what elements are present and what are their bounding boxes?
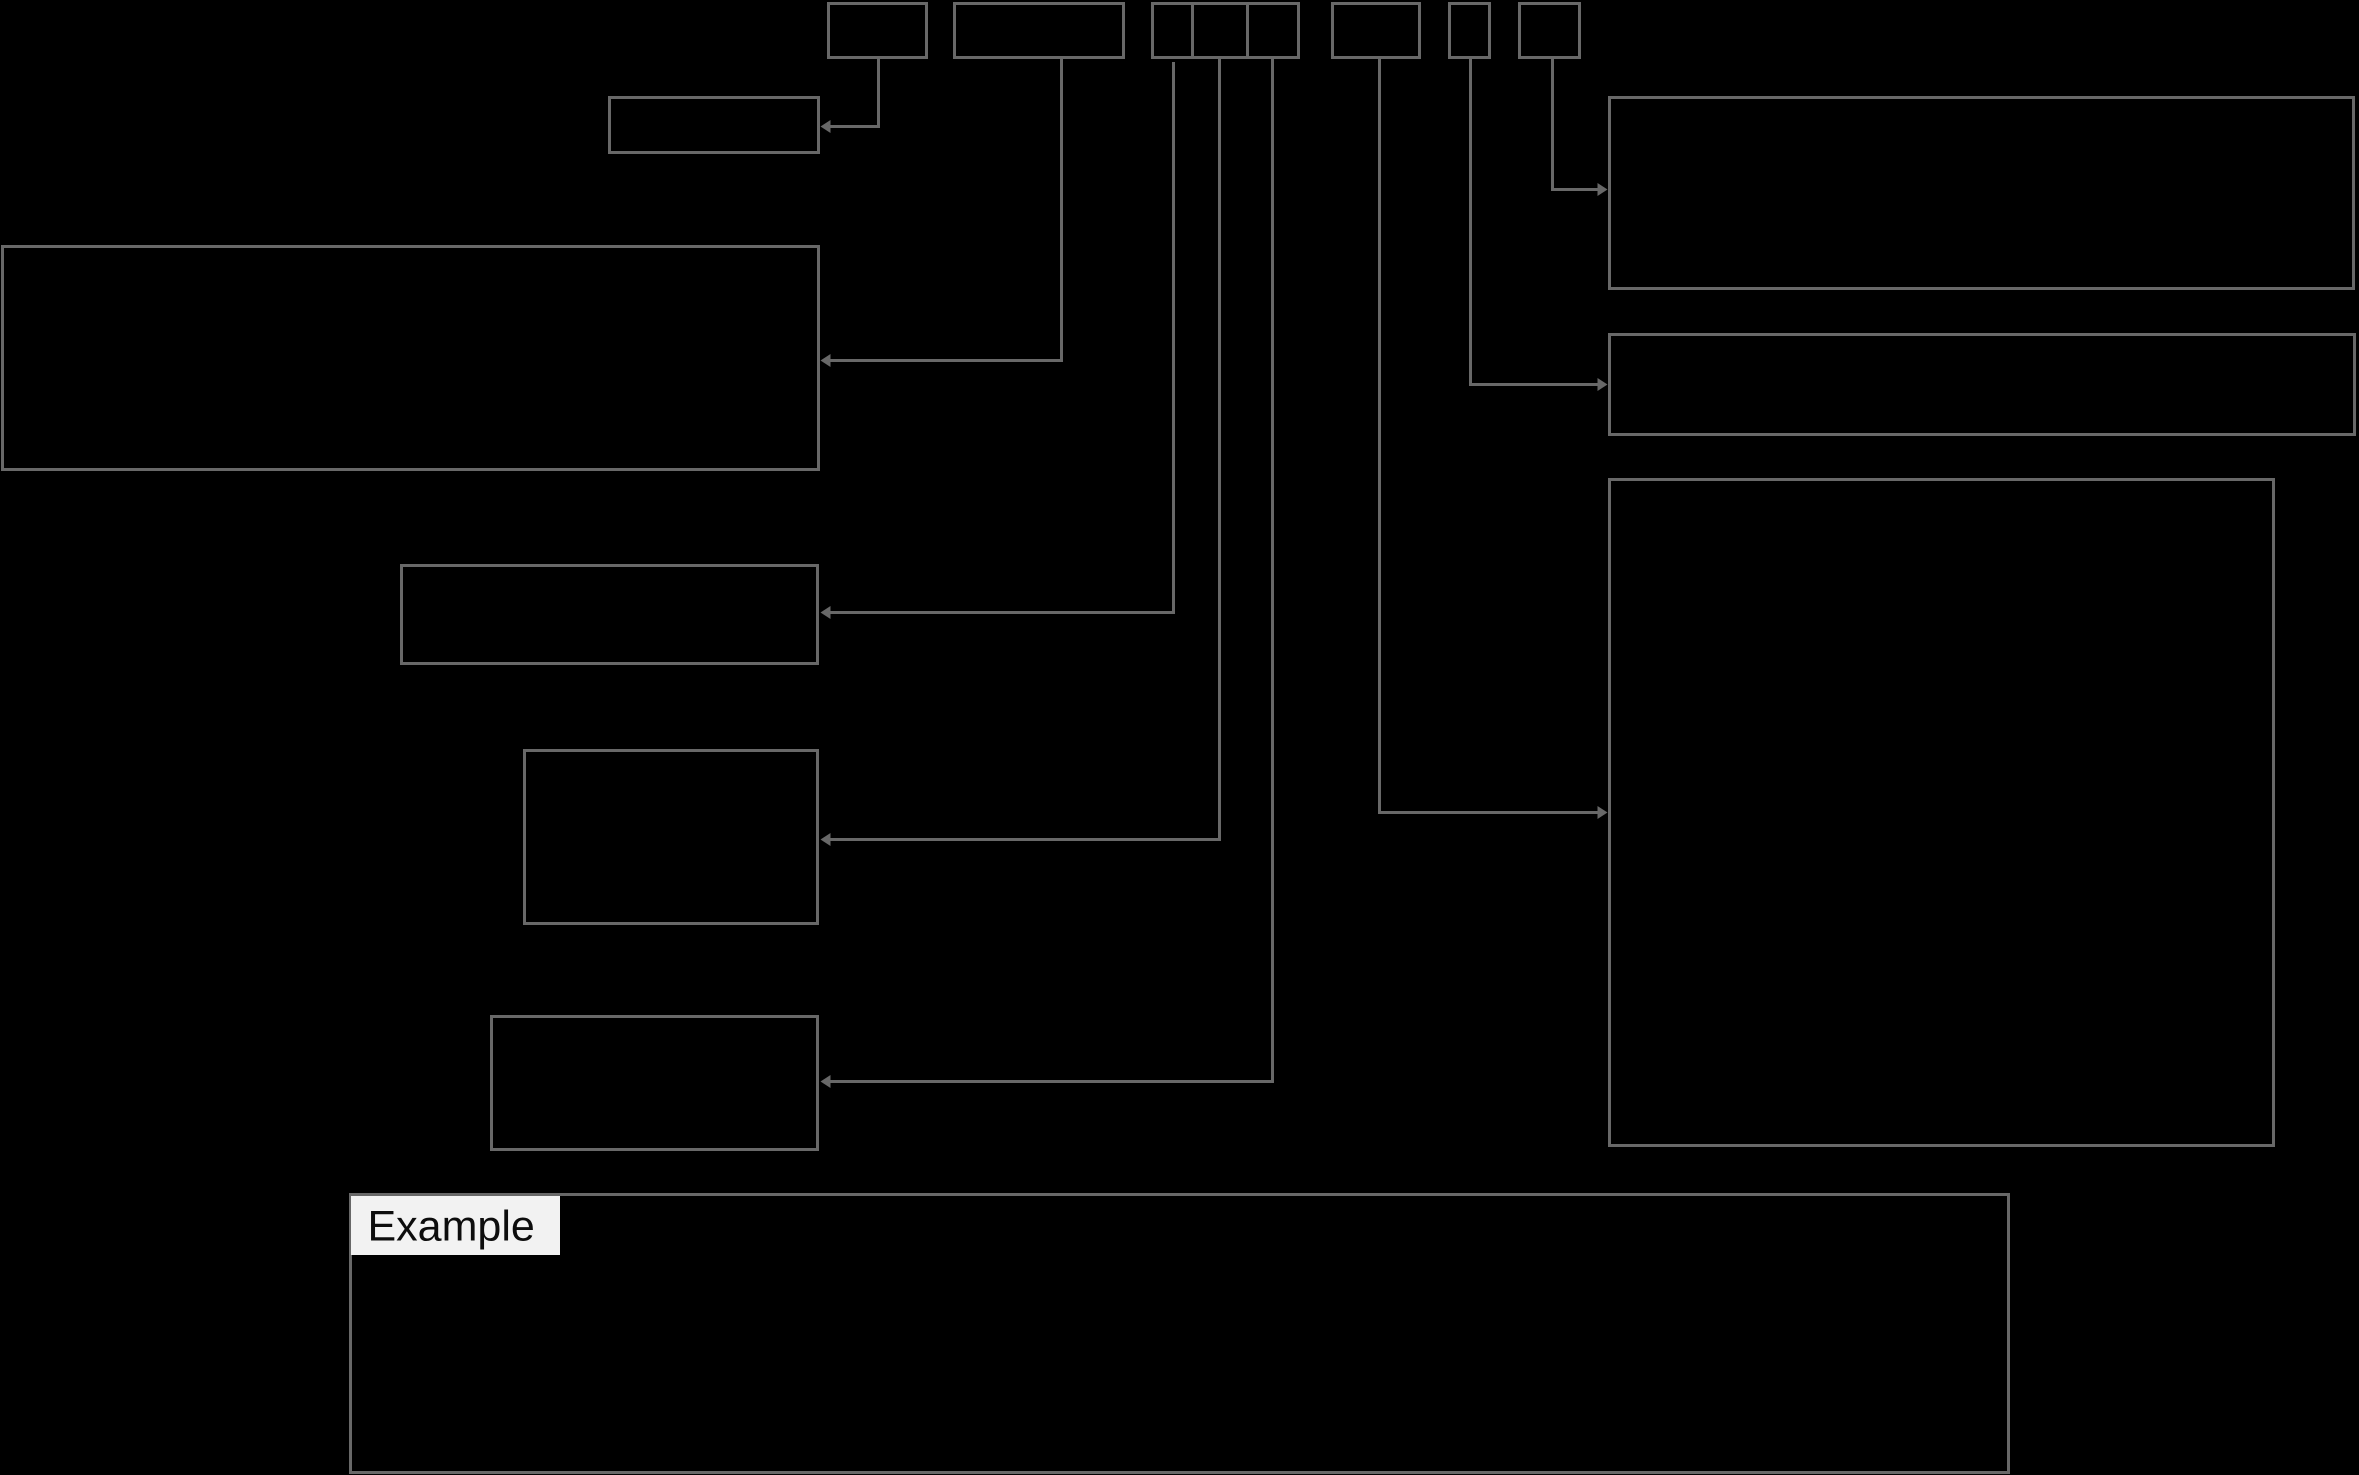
svg-text:Example: Example xyxy=(368,1203,535,1251)
